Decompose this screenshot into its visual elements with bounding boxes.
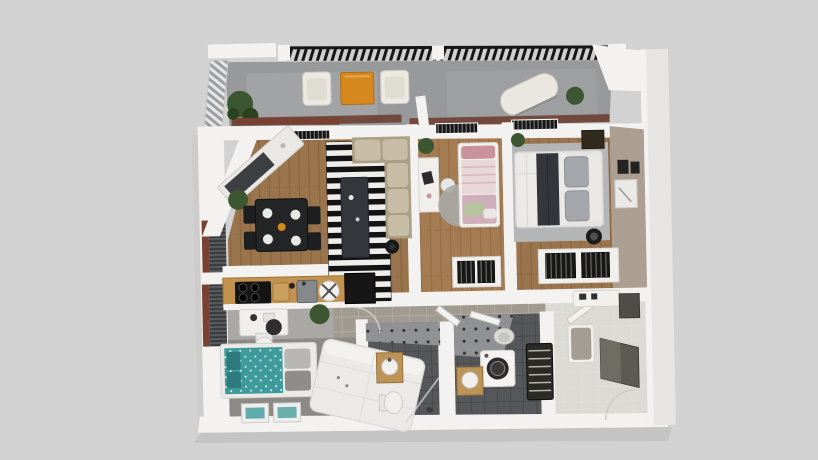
wall-niche: [619, 294, 639, 318]
apartment: [186, 35, 676, 451]
pergola-post: [278, 45, 290, 61]
washing-machine: [480, 350, 515, 387]
orange-coffee-table: [340, 72, 374, 105]
wall-bath1-bath2: [438, 321, 456, 423]
bench-with-cushion: [568, 324, 595, 363]
balcony-wall-cap: [208, 43, 276, 58]
wall-grille: [436, 123, 478, 134]
wall-grille: [512, 119, 558, 130]
dark-coffee-table: [341, 177, 370, 258]
teal-single-bed: [220, 342, 317, 398]
exhaust-fan: [319, 281, 339, 301]
console-shelf: [573, 290, 619, 307]
ladder-rack: [526, 343, 553, 400]
pergola-post: [432, 46, 444, 60]
kitchen-sink: [297, 280, 317, 302]
toilet: [494, 328, 514, 344]
wardrobe-hanging-clothes: [538, 248, 619, 284]
pink-single-bed: [458, 142, 500, 227]
toilet: [379, 391, 402, 413]
dark-nightstand: [582, 130, 604, 148]
lounge-chair: [380, 70, 409, 104]
white-vanity: [239, 309, 288, 336]
lounge-chair: [302, 72, 331, 106]
double-bed: [514, 150, 604, 228]
cutting-board: [273, 283, 289, 301]
picture-frames: [614, 159, 640, 208]
wood-vanity-sink: [457, 367, 484, 396]
wood-vanity-sink: [376, 352, 403, 383]
floor-plan-render: [0, 0, 818, 460]
induction-cooktop: [235, 281, 271, 304]
white-desk: [418, 158, 439, 212]
floor-plan-screenshot: Photorealistic top-down 3D floor plan re…: [0, 0, 818, 460]
closet-hanging-clothes: [452, 256, 501, 287]
black-cabinet: [345, 273, 376, 304]
